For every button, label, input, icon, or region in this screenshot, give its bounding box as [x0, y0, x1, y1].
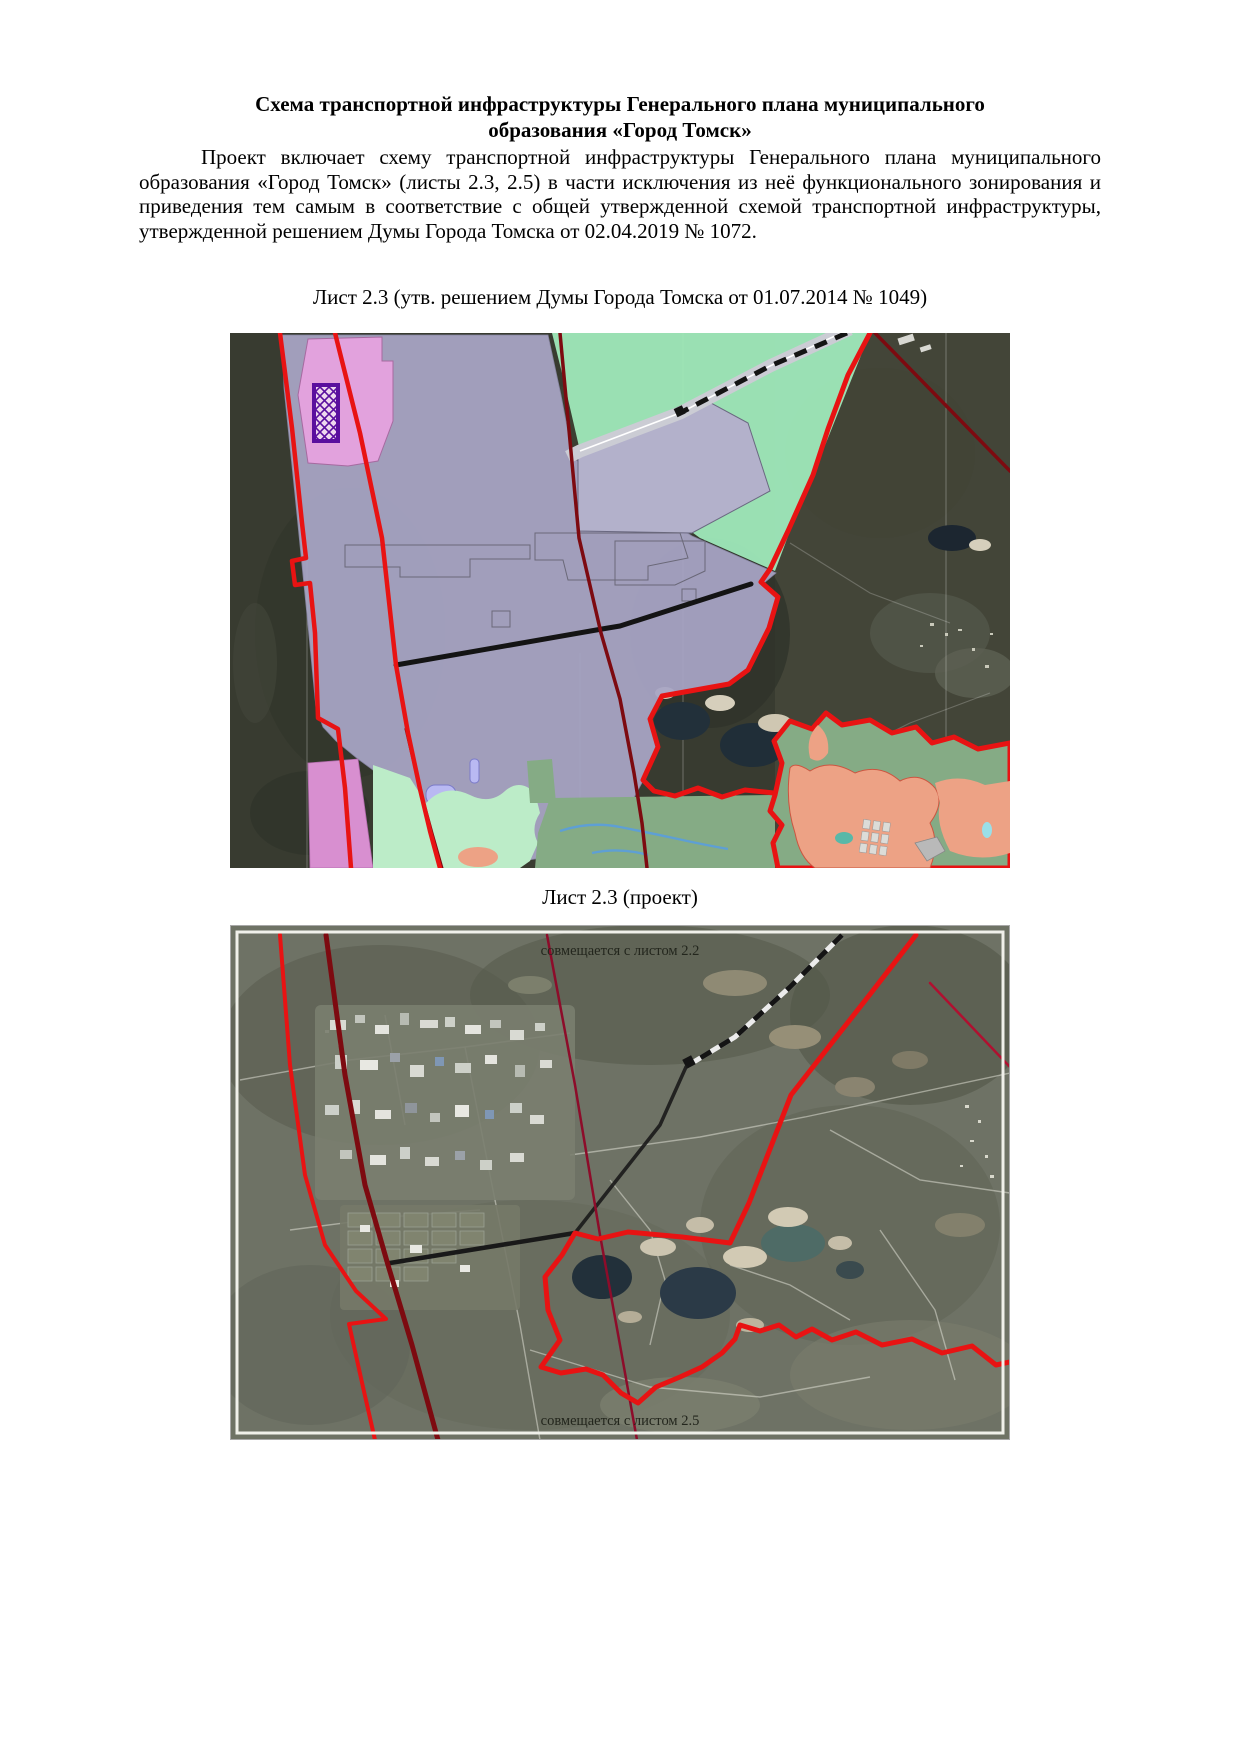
sage-sliver	[527, 759, 556, 803]
white-grid-structure	[859, 819, 890, 855]
map2-label-bottom: совмещается с листом 2.5	[541, 1413, 700, 1429]
map2-image: совмещается с листом 2.2 совмещается с л…	[230, 925, 1010, 1440]
map2-figure: совмещается с листом 2.2 совмещается с л…	[230, 925, 1010, 1440]
body-paragraph: Проект включает схему транспортной инфра…	[139, 145, 1101, 243]
sage-band	[535, 795, 775, 868]
document-page: Схема транспортной инфраструктуры Генера…	[0, 0, 1240, 1754]
map1-image	[230, 333, 1010, 868]
hatched-special-zone	[314, 385, 338, 441]
salmon-small-blob	[458, 847, 498, 867]
map1-figure	[230, 333, 1010, 868]
map2-label-top: совмещается с листом 2.2	[541, 943, 700, 959]
map2-caption: Лист 2.3 (проект)	[0, 885, 1240, 910]
page-title: Схема транспортной инфраструктуры Генера…	[220, 0, 1020, 143]
map1-caption: Лист 2.3 (утв. решением Думы Города Томс…	[0, 285, 1240, 310]
